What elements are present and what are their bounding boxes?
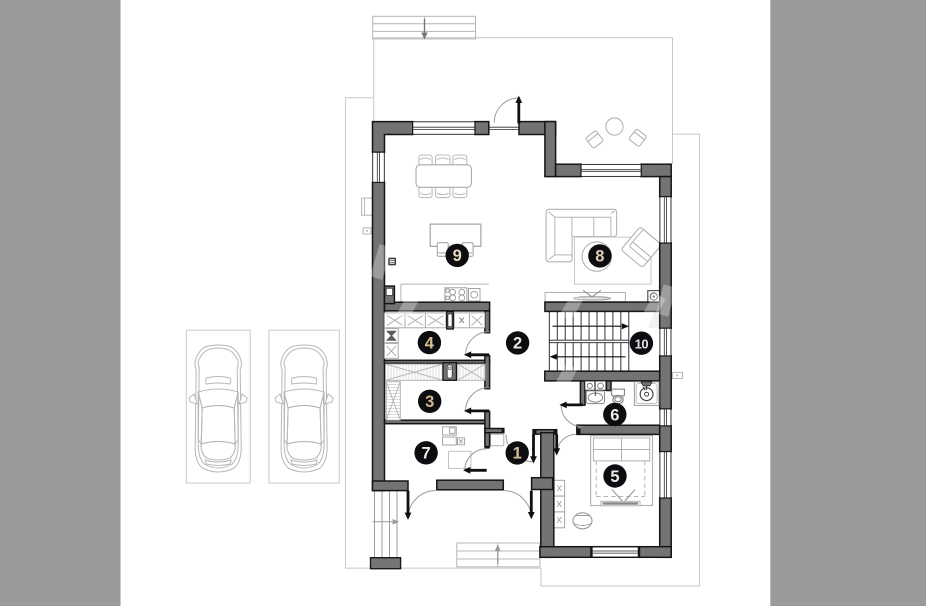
- svg-text:4: 4: [425, 334, 435, 352]
- svg-text:3: 3: [425, 393, 434, 411]
- svg-text:10: 10: [635, 336, 649, 351]
- svg-text:9: 9: [453, 247, 462, 265]
- svg-text:5: 5: [610, 468, 619, 486]
- svg-text:2: 2: [513, 335, 522, 353]
- svg-text:8: 8: [595, 248, 604, 266]
- svg-text:1: 1: [513, 445, 522, 463]
- svg-text:6: 6: [610, 406, 619, 424]
- svg-text:7: 7: [422, 445, 431, 463]
